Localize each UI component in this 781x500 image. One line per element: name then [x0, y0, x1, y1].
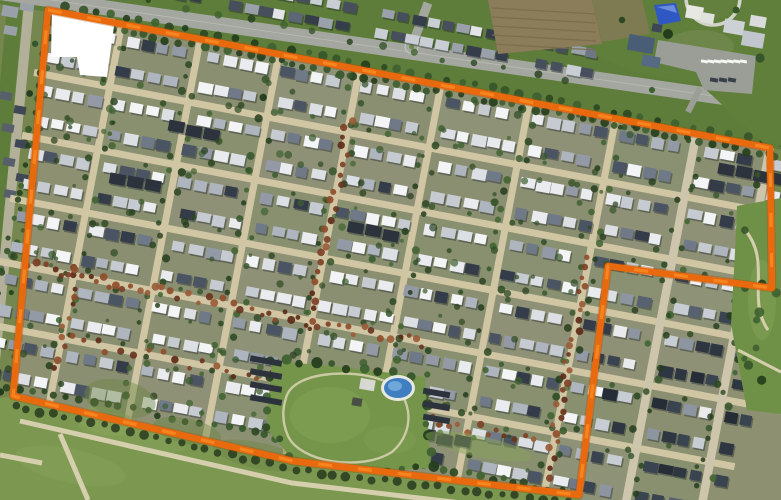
aerial-photo-svg — [0, 0, 781, 500]
aerial-screenshot — [0, 0, 781, 500]
